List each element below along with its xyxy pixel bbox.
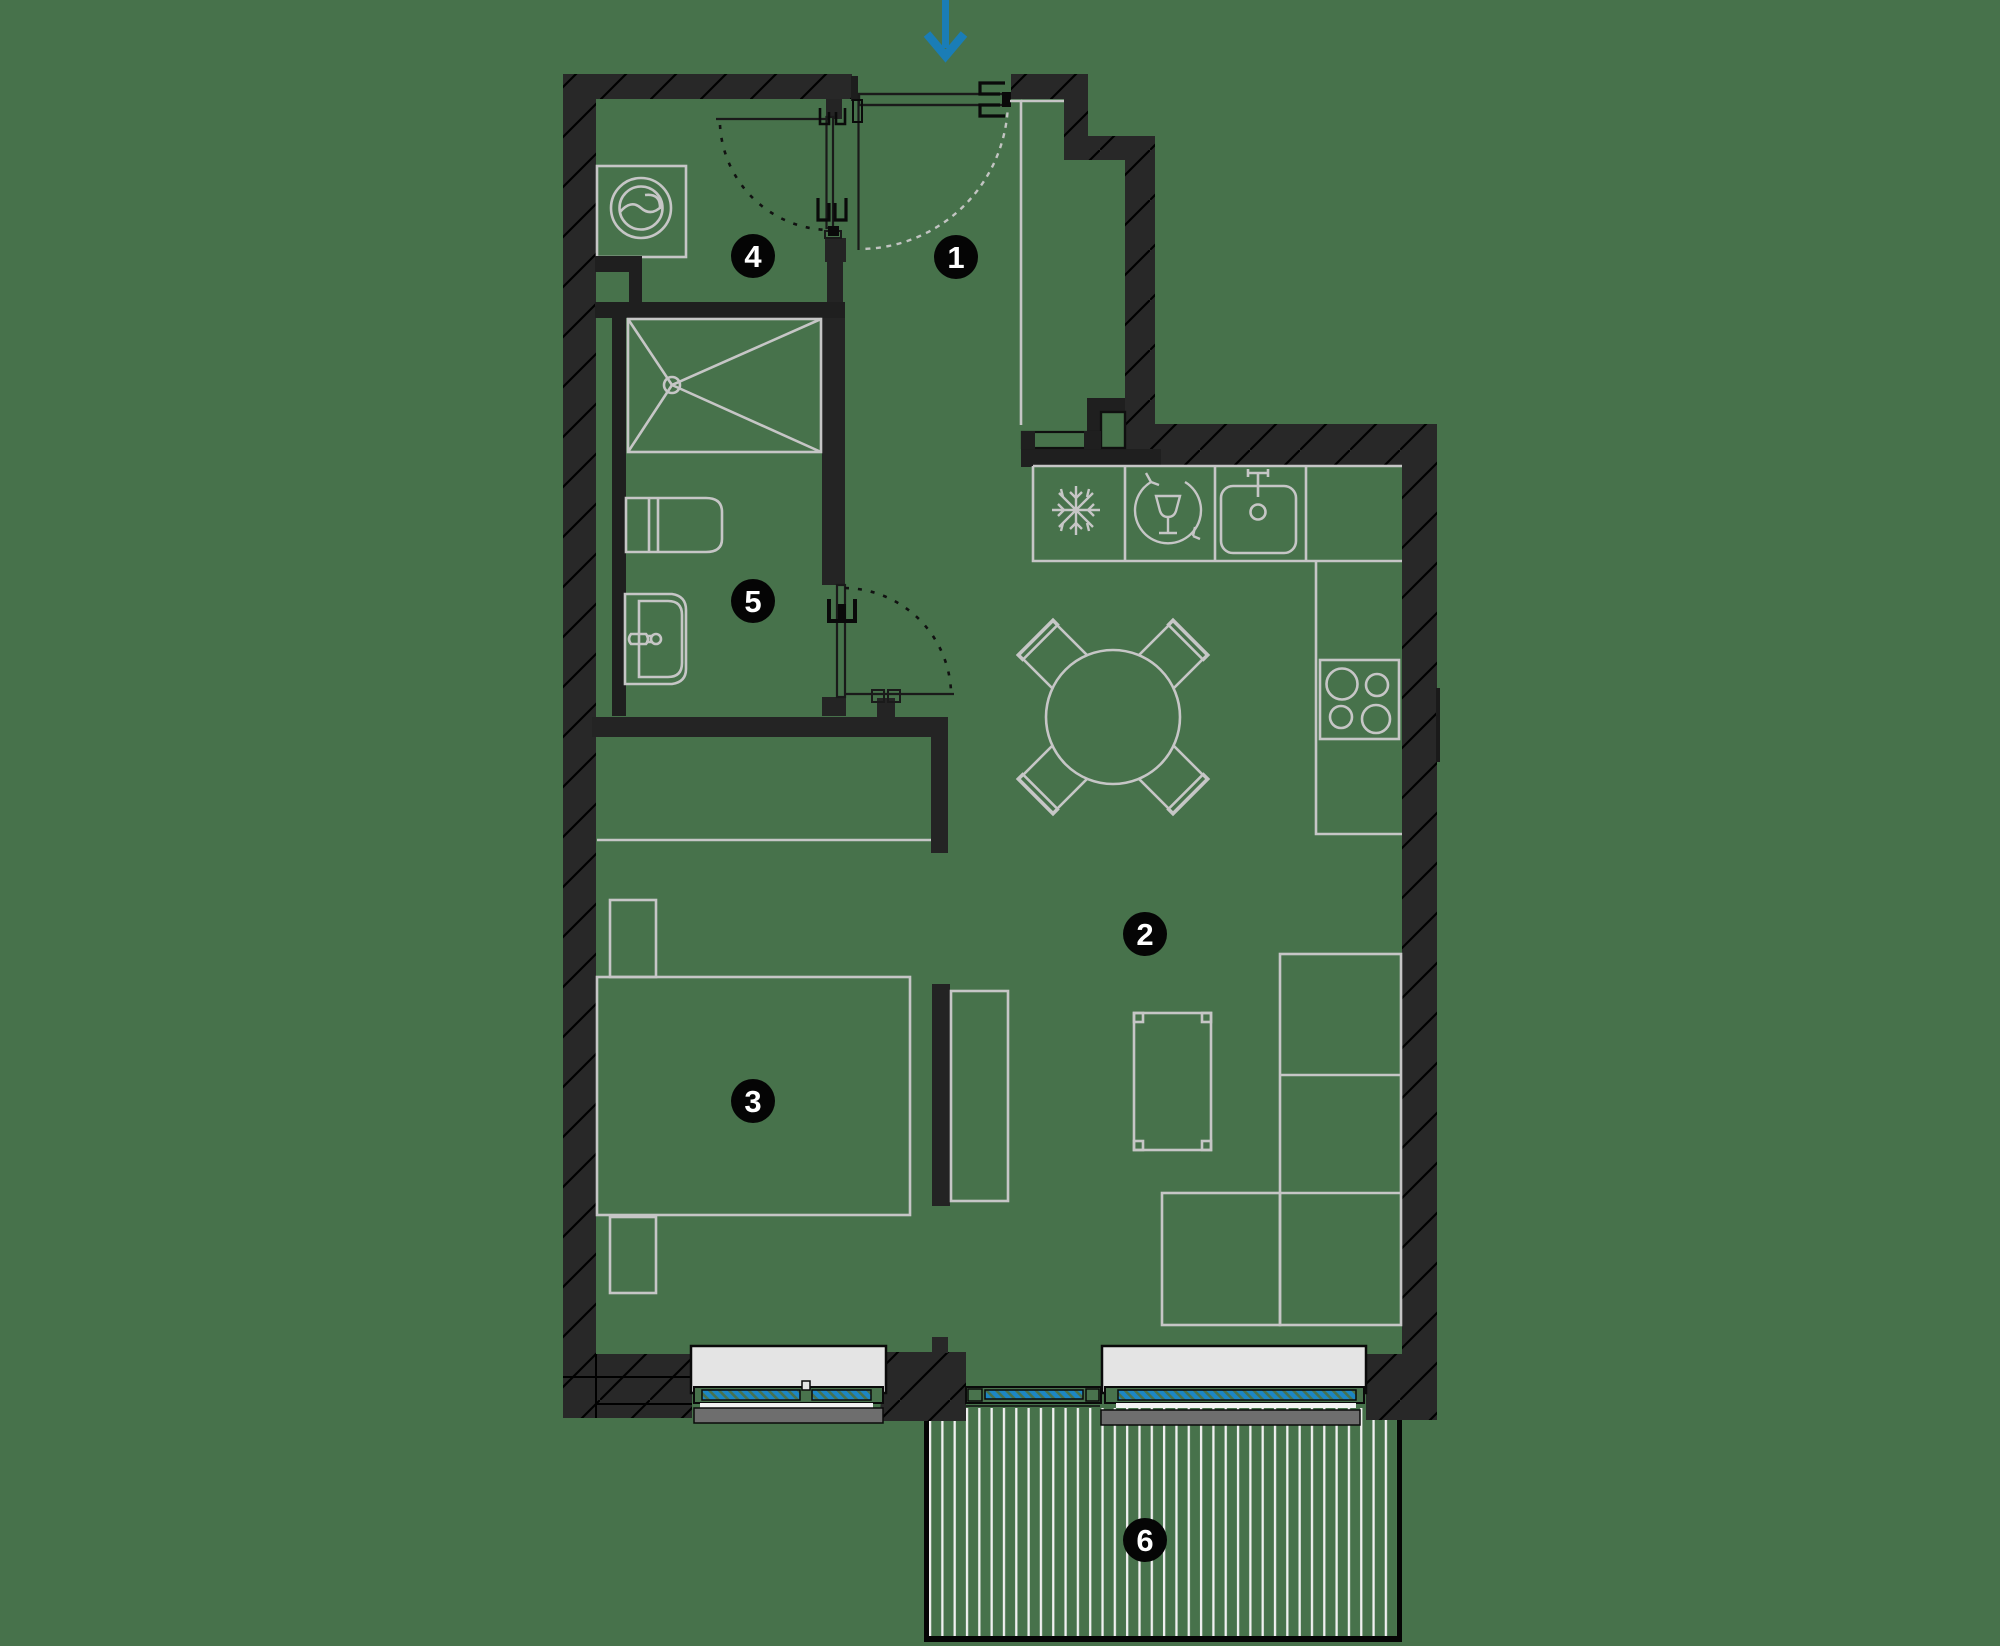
svg-text:2: 2 (1136, 917, 1153, 952)
svg-text:1: 1 (947, 240, 964, 275)
svg-text:3: 3 (744, 1084, 761, 1119)
svg-text:4: 4 (744, 239, 762, 274)
svg-text:5: 5 (744, 584, 761, 619)
svg-text:6: 6 (1136, 1523, 1153, 1558)
